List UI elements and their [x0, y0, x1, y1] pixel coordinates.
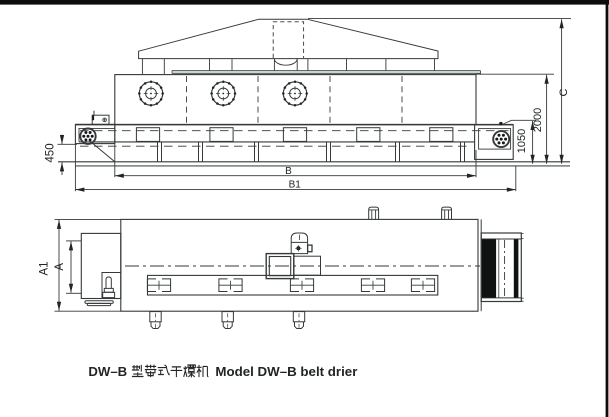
svg-text:A: A	[54, 263, 66, 271]
svg-text:1050: 1050	[516, 129, 528, 153]
svg-text:Model DW–B belt drier: Model DW–B belt drier	[215, 364, 357, 379]
svg-text:B1: B1	[289, 180, 302, 191]
svg-text:B: B	[285, 166, 292, 177]
svg-text:450: 450	[45, 143, 57, 162]
svg-text:2000: 2000	[532, 108, 544, 132]
svg-text:C: C	[558, 88, 570, 96]
svg-text:DW–B: DW–B	[88, 364, 127, 379]
svg-text:A1: A1	[39, 261, 51, 275]
